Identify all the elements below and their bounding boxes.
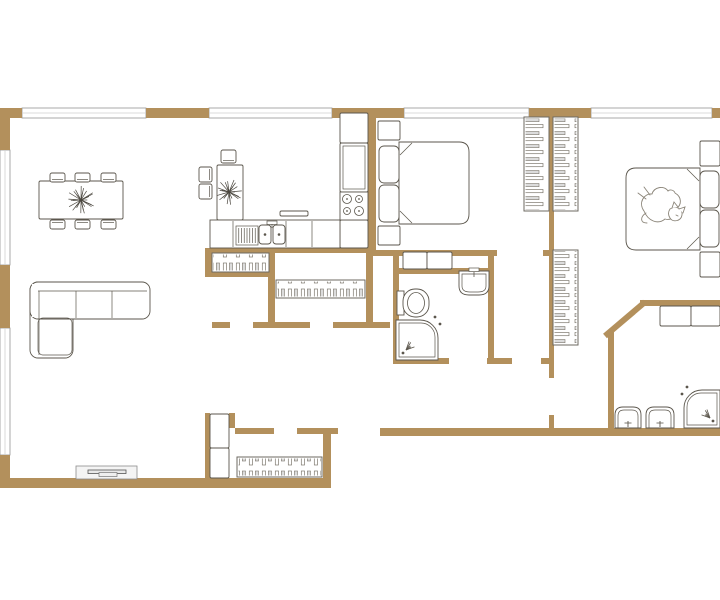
window	[591, 108, 712, 118]
bathroom2-sink	[615, 407, 641, 428]
window	[0, 150, 10, 265]
kitchen-tall-cabinet	[340, 113, 368, 143]
entry-cabinet	[210, 414, 229, 448]
bath-counter	[660, 306, 691, 326]
dining-chair	[75, 220, 90, 229]
dining-chair	[101, 220, 116, 229]
nightstand	[378, 121, 400, 140]
laundry-cabinet	[427, 252, 452, 269]
kitchen-counter-end	[340, 220, 368, 248]
entry-radiator	[237, 457, 322, 477]
window	[209, 108, 332, 118]
bed-bedroom1	[379, 142, 469, 224]
bathroom1-sink	[459, 268, 489, 295]
dining-chair	[101, 173, 116, 182]
entry-cabinet	[210, 448, 229, 478]
dining-chair	[50, 220, 65, 229]
bistro-chair	[199, 184, 212, 199]
floor-plan-canvas	[0, 0, 720, 600]
bathroom2-sink	[646, 407, 674, 428]
bistro-chair	[199, 167, 212, 182]
dish-rack	[236, 226, 258, 245]
closet-kitchen-left	[212, 253, 269, 272]
wardrobe-bedroom1	[524, 117, 549, 211]
shower-bathroom2	[681, 386, 720, 428]
tv-stand	[76, 466, 137, 479]
bistro-chair	[221, 150, 236, 163]
nightstand	[378, 226, 400, 245]
closet-kitchen-right	[276, 280, 365, 298]
floor-plan-svg	[0, 0, 720, 600]
wardrobe-bedroom2	[553, 117, 578, 211]
bath-counter	[691, 306, 720, 326]
nightstand	[700, 141, 720, 166]
shower-bathroom1	[396, 316, 441, 360]
kitchen-cabinet	[340, 143, 368, 192]
laundry-cabinet	[403, 252, 427, 269]
dining-chair	[50, 173, 65, 182]
kitchen-shelf	[280, 211, 308, 216]
toilet	[397, 289, 429, 317]
dining-chair	[75, 173, 90, 182]
corner-sofa	[30, 282, 150, 358]
window	[404, 108, 529, 118]
wardrobe-bedroom2-lower	[553, 250, 578, 345]
window	[22, 108, 146, 118]
window	[0, 328, 10, 455]
stove	[340, 192, 368, 220]
nightstand	[700, 252, 720, 277]
